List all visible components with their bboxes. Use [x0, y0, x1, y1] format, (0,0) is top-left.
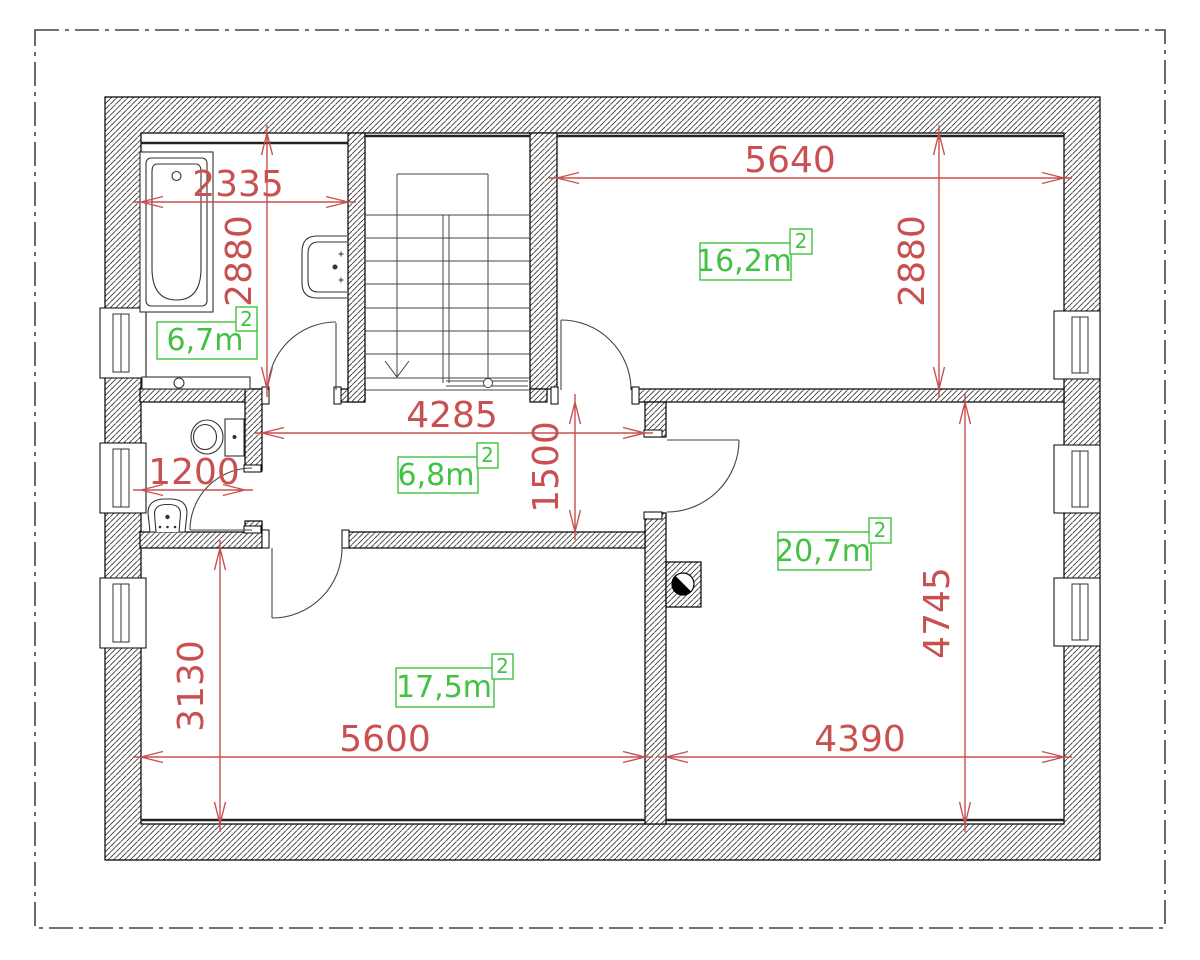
dim-label: 4745 [917, 567, 958, 659]
wall-topright-south [634, 389, 1064, 402]
area-value: 16,2m [696, 244, 792, 279]
window-wc [100, 443, 146, 513]
dim-hallway-width: 4285 [254, 395, 653, 439]
walls [105, 97, 1100, 860]
wall-wc-east [245, 389, 262, 471]
wall-room17-north [344, 532, 645, 548]
window-room20-lower [1054, 578, 1100, 646]
door-room20 [644, 430, 739, 519]
area-value: 6,8m [398, 458, 475, 493]
area-label-bedroom-topright: 16,2m 2 [696, 229, 812, 280]
area-value: 20,7m [775, 534, 871, 569]
floor-plan-page: 2335 2880 5640 2880 4285 1500 1200 3130 [0, 0, 1200, 960]
wc-sink [148, 499, 187, 532]
chimney-flue-icon [672, 573, 694, 595]
bathtub-drain-icon [172, 172, 181, 181]
wall-wc-south [140, 532, 262, 548]
area-label-bathroom: 6,7m 2 [157, 307, 257, 359]
dim-label: 2880 [219, 215, 260, 307]
dim-label: 5640 [744, 140, 836, 181]
area-sup: 2 [496, 654, 509, 678]
dim-topright-height: 2880 [892, 125, 945, 397]
window-room17 [100, 578, 146, 648]
toilet [191, 419, 244, 456]
dim-label: 4390 [814, 719, 906, 760]
dim-label: 2880 [892, 215, 933, 307]
area-value: 17,5m [396, 670, 492, 705]
exterior-wall [105, 97, 1100, 860]
stair-newel-icon [484, 379, 493, 388]
area-sup: 2 [795, 229, 808, 253]
dim-topright-width: 5640 [549, 140, 1072, 184]
area-label-room17: 17,5m 2 [396, 654, 513, 707]
dim-label: 1500 [526, 421, 567, 513]
area-sup: 2 [874, 518, 887, 542]
wall-rooms-divider [645, 513, 666, 824]
door-room17 [262, 530, 349, 618]
window-bedroom-topright [1054, 311, 1100, 379]
dim-room20-width: 4390 [658, 719, 1072, 763]
wall-stairs-jamb [530, 389, 547, 402]
bathroom-sink [302, 236, 347, 298]
dim-hallway-height: 1500 [526, 394, 581, 540]
dim-wc-width: 1200 [133, 452, 253, 496]
dim-room20-height: 4745 [917, 394, 971, 832]
wall-stairs-bedroom [530, 133, 557, 389]
dim-label: 1200 [148, 452, 240, 493]
dim-label: 3130 [171, 640, 212, 732]
dim-label: 5600 [339, 719, 431, 760]
dim-label: 4285 [406, 395, 498, 436]
area-sup: 2 [240, 307, 253, 331]
door-bedroom-topright [551, 320, 639, 404]
floor-plan-drawing: 2335 2880 5640 2880 4285 1500 1200 3130 [0, 0, 1200, 960]
area-label-room20: 20,7m 2 [775, 518, 891, 570]
area-value: 6,7m [167, 323, 244, 358]
door-bathroom [262, 322, 341, 404]
dimensions: 2335 2880 5640 2880 4285 1500 1200 3130 [133, 125, 1072, 832]
area-sup: 2 [481, 443, 494, 467]
staircase [365, 174, 530, 390]
window-bathroom [100, 308, 146, 378]
area-label-hallway: 6,8m 2 [398, 443, 498, 493]
window-room20-upper [1054, 445, 1100, 513]
radiator [142, 377, 250, 389]
wall-bathroom-stairs [348, 133, 365, 402]
dim-room17-height: 3130 [171, 540, 226, 832]
dim-label: 2335 [192, 164, 284, 205]
